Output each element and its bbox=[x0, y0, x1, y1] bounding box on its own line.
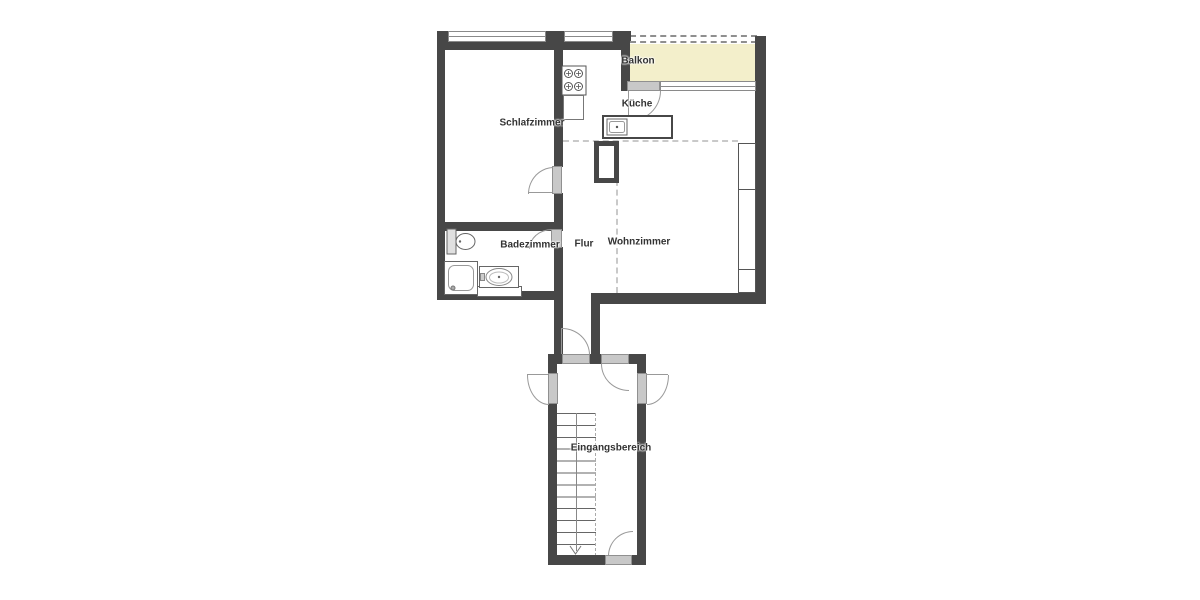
shaft bbox=[594, 141, 619, 183]
wall bbox=[554, 40, 563, 167]
kitchen-sink-icon bbox=[607, 119, 627, 135]
door-front bbox=[605, 555, 632, 565]
room-label-schlafzimmer: Schlafzimmer bbox=[499, 118, 564, 129]
balcony-railing bbox=[630, 35, 757, 37]
stair-direction-line bbox=[576, 413, 577, 551]
door-swing-arc bbox=[562, 328, 590, 355]
wall bbox=[437, 291, 557, 300]
room-label-wohnzimmer: Wohnzimmer bbox=[608, 237, 671, 248]
floor-plan: Balkon Küche Schlafzimmer Badezimmer Flu… bbox=[0, 0, 1200, 600]
door-leaf bbox=[527, 374, 548, 375]
door-swing-arc bbox=[601, 364, 629, 391]
door-neighbor-right bbox=[637, 373, 647, 404]
wall bbox=[554, 193, 563, 230]
window-schlafzimmer bbox=[448, 31, 546, 42]
window-wohnzimmer bbox=[738, 143, 756, 293]
wall bbox=[637, 403, 646, 565]
kitchen-livingroom-divider bbox=[563, 140, 738, 142]
toilet-icon bbox=[447, 229, 475, 254]
room-label-kueche: Küche bbox=[622, 99, 653, 110]
window-balkon bbox=[660, 81, 756, 91]
wall bbox=[548, 354, 563, 364]
door-swing-arc bbox=[527, 375, 549, 405]
door-landing bbox=[601, 354, 629, 364]
balcony-railing bbox=[630, 41, 757, 43]
shower-icon bbox=[445, 262, 478, 295]
window-kueche bbox=[564, 31, 613, 42]
wall bbox=[755, 36, 766, 304]
room-label-flur: Flur bbox=[575, 239, 594, 250]
room-label-badezimmer: Badezimmer bbox=[500, 240, 559, 251]
door-leaf bbox=[561, 328, 562, 354]
door-swing-arc bbox=[647, 375, 669, 405]
door-schlafzimmer bbox=[552, 166, 562, 194]
wall bbox=[437, 31, 445, 300]
door-leaf bbox=[647, 374, 668, 375]
door-neighbor-left bbox=[548, 373, 558, 404]
wall bbox=[548, 555, 606, 565]
door-leaf bbox=[528, 192, 553, 193]
door-balkon bbox=[627, 81, 660, 91]
wall bbox=[591, 293, 766, 304]
stove-icon bbox=[562, 66, 586, 95]
room-label-balkon: Balkon bbox=[621, 56, 654, 67]
wall bbox=[631, 555, 646, 565]
wall bbox=[628, 354, 646, 364]
wall bbox=[548, 403, 557, 565]
room-label-eingangsbereich: Eingangsbereich bbox=[571, 443, 652, 454]
door-swing-arc bbox=[608, 531, 633, 556]
door-swing-arc bbox=[528, 167, 554, 194]
door-flur-entry bbox=[562, 354, 590, 364]
